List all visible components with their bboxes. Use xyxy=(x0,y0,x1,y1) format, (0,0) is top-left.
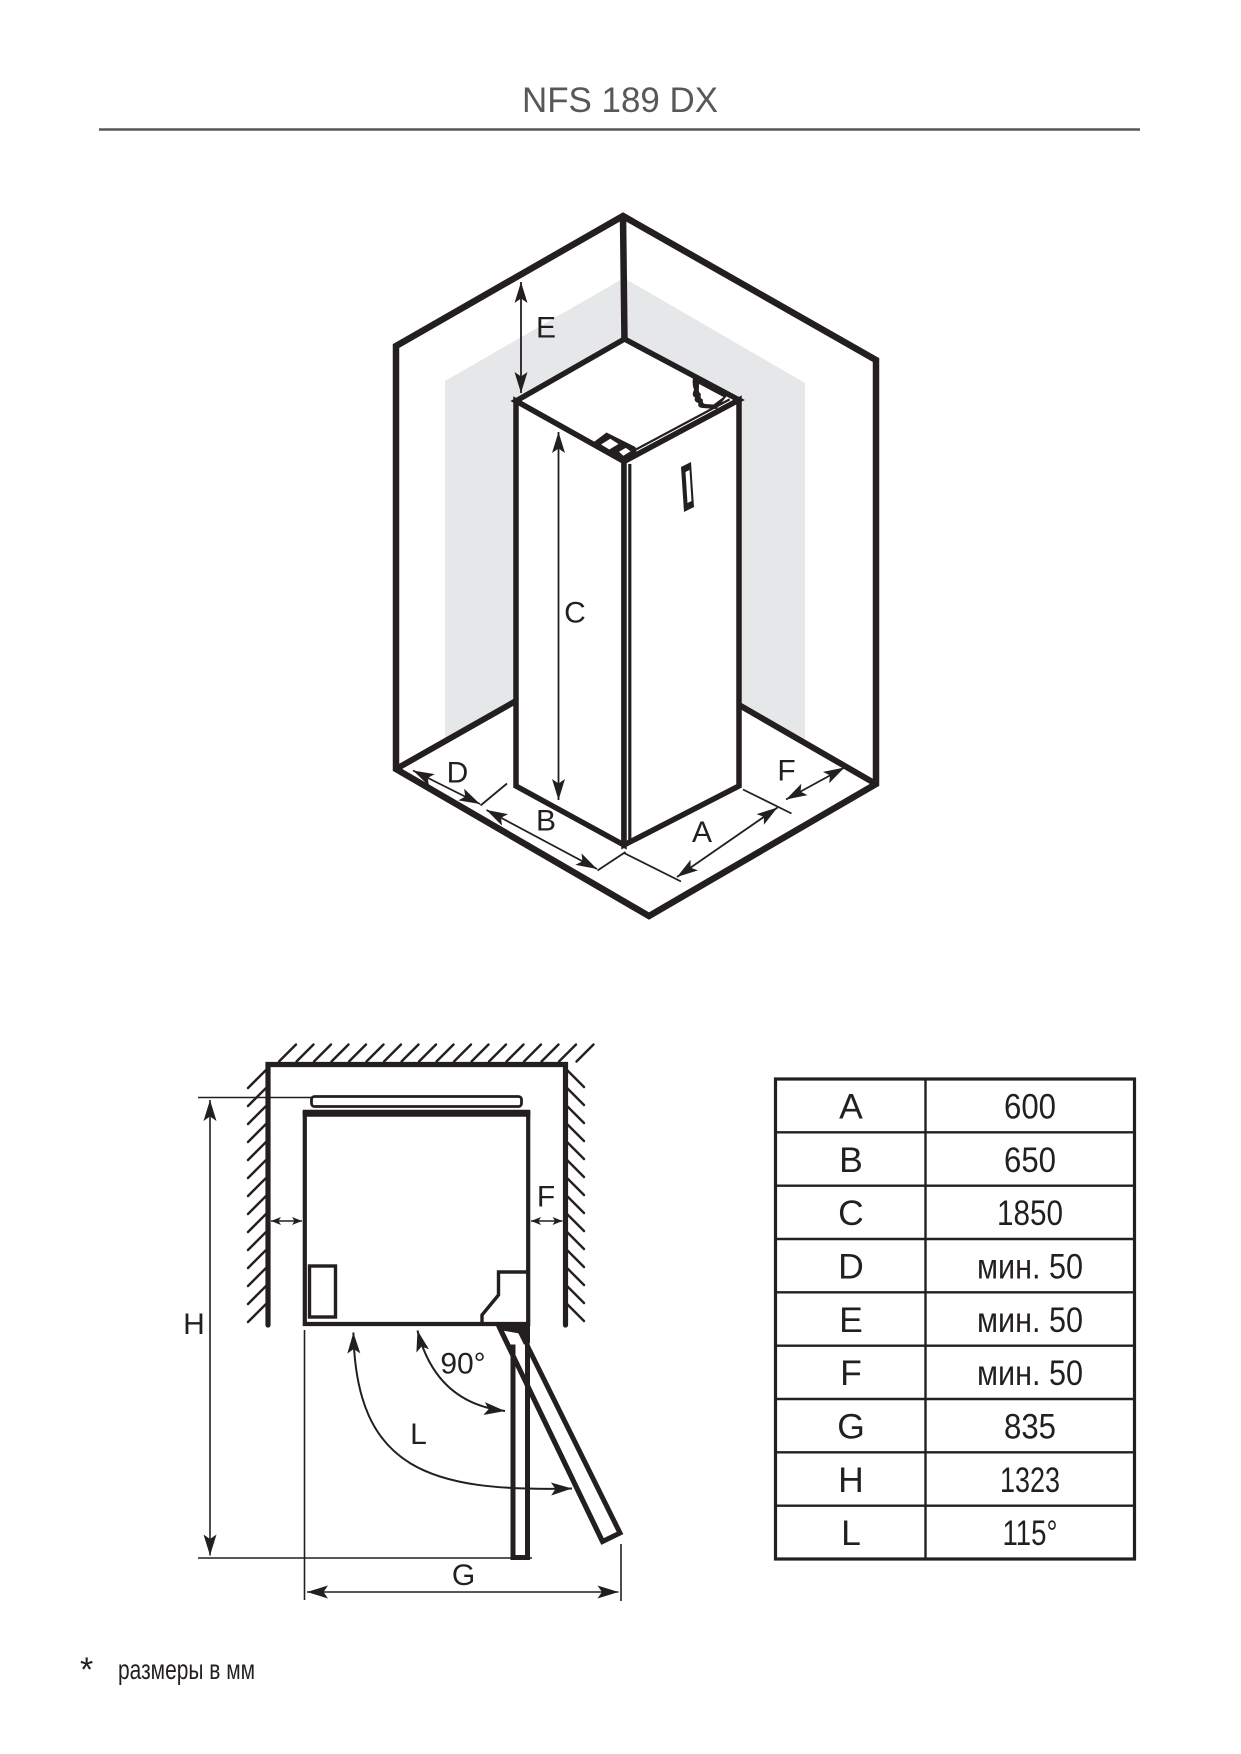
svg-text:NFS 189 DX: NFS 189 DX xyxy=(522,81,718,120)
svg-text:G: G xyxy=(452,1559,475,1592)
svg-text:мин. 50: мин. 50 xyxy=(977,1353,1083,1393)
svg-text:F: F xyxy=(537,1181,555,1214)
svg-text:C: C xyxy=(838,1193,864,1233)
svg-text:B: B xyxy=(839,1140,863,1180)
svg-text:90°: 90° xyxy=(440,1348,485,1381)
svg-text:мин. 50: мин. 50 xyxy=(977,1300,1083,1340)
svg-text:*: * xyxy=(80,1651,93,1689)
svg-text:C: C xyxy=(564,597,586,630)
svg-text:H: H xyxy=(183,1308,205,1341)
svg-text:F: F xyxy=(777,755,795,788)
svg-text:A: A xyxy=(692,816,712,849)
svg-text:B: B xyxy=(536,805,556,838)
svg-text:1323: 1323 xyxy=(1000,1460,1060,1500)
svg-text:835: 835 xyxy=(1004,1407,1056,1447)
svg-text:G: G xyxy=(837,1407,865,1447)
svg-text:H: H xyxy=(838,1460,864,1500)
svg-text:650: 650 xyxy=(1004,1140,1056,1180)
svg-text:115°: 115° xyxy=(1003,1513,1058,1553)
svg-text:E: E xyxy=(839,1300,863,1340)
svg-text:D: D xyxy=(838,1247,864,1287)
svg-text:мин. 50: мин. 50 xyxy=(977,1247,1083,1287)
svg-text:F: F xyxy=(840,1353,862,1393)
svg-text:1850: 1850 xyxy=(997,1193,1063,1233)
svg-text:размеры в мм: размеры в мм xyxy=(118,1654,255,1685)
svg-text:A: A xyxy=(839,1087,863,1127)
svg-text:600: 600 xyxy=(1004,1087,1056,1127)
svg-text:D: D xyxy=(447,757,469,790)
svg-text:L: L xyxy=(841,1513,861,1553)
svg-text:L: L xyxy=(410,1418,427,1451)
svg-text:E: E xyxy=(536,312,556,345)
